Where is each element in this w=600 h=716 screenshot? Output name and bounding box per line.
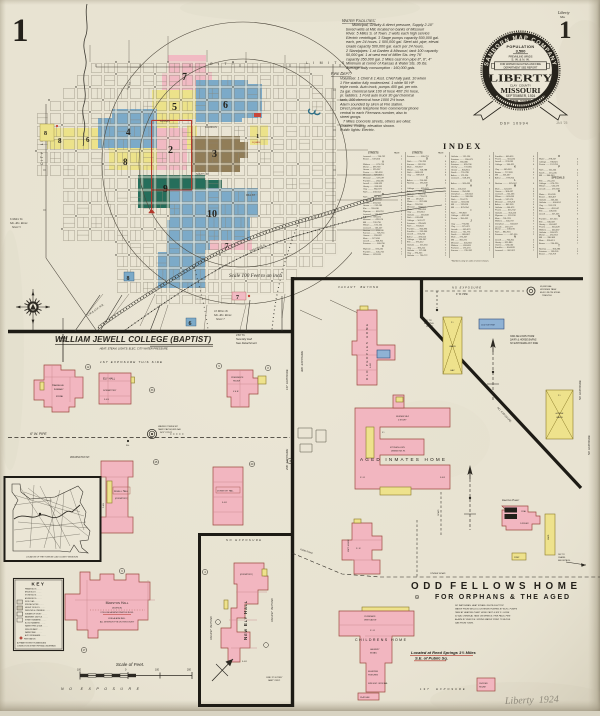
svg-text:ROAD: ROAD — [437, 509, 440, 516]
svg-text:Brown .... 713-759: Brown .... 713-759 — [539, 253, 557, 256]
svg-text:See Detachment: See Detachment — [236, 341, 257, 345]
svg-text:H: H — [470, 184, 472, 187]
svg-text:ALPHABET EXTENT PLUMBING AND: ALPHABET EXTENT PLUMBING AND — [17, 642, 47, 645]
svg-text:HAY: HAY — [450, 369, 455, 372]
svg-text:JEWELL HALL: JEWELL HALL — [114, 490, 129, 493]
svg-text:JA 5 ’25: JA 5 ’25 — [556, 121, 568, 125]
svg-text:STREETS: STREETS — [368, 153, 379, 155]
svg-text:Arthur ...... 596-691: Arthur ...... 596-691 — [363, 215, 382, 218]
svg-text:Jewell .......... 427-505: Jewell .......... 427-505 — [539, 213, 560, 215]
svg-text:Clay .......... 882-973: Clay .......... 882-973 — [363, 189, 383, 191]
svg-text:4: 4 — [126, 127, 131, 137]
svg-text:BARN: BARN — [556, 416, 562, 419]
svg-text:1: 1 — [256, 133, 259, 140]
svg-text:Elm .... 101-163: Elm .... 101-163 — [451, 188, 467, 190]
svg-text:Main .... 733-768: Main .... 733-768 — [407, 204, 423, 206]
svg-text:1ST EXPOSURE: 1ST EXPOSURE — [420, 687, 467, 691]
svg-text:NO EXPOSURE: NO EXPOSURE — [587, 435, 591, 455]
svg-text:CHAPEL: CHAPEL — [558, 556, 566, 559]
svg-text:STONE BLD'G . . . . . .: STONE BLD'G . . . . . . — [25, 595, 42, 597]
svg-text:Located at Reed Springs 1½ Mil: Located at Reed Springs 1½ Miles — [411, 650, 476, 655]
svg-text:Ruth .... 882-916: Ruth .... 882-916 — [495, 230, 511, 233]
svg-text:NO EXPOSURE ANY SIDE: NO EXPOSURE ANY SIDE — [510, 342, 539, 345]
svg-text:Prairie .......... 615-702: Prairie .......... 615-702 — [495, 209, 516, 212]
svg-text:NO EXPOSURE: NO EXPOSURE — [226, 538, 263, 542]
svg-text:College ...... 300-321: College ...... 300-321 — [495, 164, 515, 166]
svg-text:VENTILATOR: VENTILATOR — [364, 619, 377, 622]
svg-text:Gallatin ........ 515-554: Gallatin ........ 515-554 — [407, 244, 428, 247]
svg-text:INDEX: INDEX — [443, 141, 483, 151]
svg-text:(DORMITORY): (DORMITORY) — [115, 498, 128, 500]
svg-text:MILL ST: MILL ST — [246, 194, 255, 197]
svg-text:Sheet 7: Sheet 7 — [216, 317, 225, 321]
svg-text:NO EXPOSURE: NO EXPOSURE — [452, 286, 482, 290]
svg-text:Kansas ......... 235-332: Kansas ......... 235-332 — [451, 250, 473, 252]
svg-text:WATER FROM WELLS & CISTERNS PU: WATER FROM WELLS & CISTERNS PUMPED BY EL… — [455, 608, 518, 611]
svg-text:Liberty ....... 268-331: Liberty ....... 268-331 — [363, 185, 383, 188]
svg-text:SQUARE: SQUARE — [252, 141, 261, 144]
svg-text:Elm ......... 108-166: Elm ......... 108-166 — [539, 211, 557, 213]
svg-text:D: D — [426, 158, 428, 161]
svg-text:C: C — [382, 245, 384, 248]
svg-text:FIRE ESC. IRON BAL.: FIRE ESC. IRON BAL. — [368, 682, 389, 685]
svg-text:C I T Y: C I T Y — [210, 62, 236, 66]
svg-text:Leonard ..... 163-207: Leonard ..... 163-207 — [363, 226, 383, 229]
svg-text:Franklin ....... 265-340: Franklin ....... 265-340 — [407, 230, 428, 233]
svg-text:Gallatin ...... 446-473: Gallatin ...... 446-473 — [495, 206, 515, 209]
svg-text:HEIGHT OF BLD'G . . . . . .: HEIGHT OF BLD'G . . . . . . — [25, 607, 46, 609]
svg-text:Prairie ........ 285-318: Prairie ........ 285-318 — [363, 171, 383, 174]
svg-text:Nashua ......... 366-386: Nashua ......... 366-386 — [539, 248, 561, 250]
svg-text:100: 100 — [155, 669, 160, 672]
svg-text:Water .... 514-539: Water .... 514-539 — [539, 193, 556, 196]
svg-text:6: 6 — [223, 100, 228, 111]
svg-text:3 & B: 3 & B — [222, 502, 227, 504]
svg-text:Ruth ......... 780-808: Ruth ......... 780-808 — [363, 196, 382, 199]
svg-text:Jewell .......... 858-911: Jewell .......... 858-911 — [363, 240, 384, 242]
svg-text:Elm ...... 559-630: Elm ...... 559-630 — [363, 208, 380, 210]
svg-text:KITCHEN & DIN: KITCHEN & DIN — [390, 447, 405, 449]
svg-text:Arthur ........ 493-555: Arthur ........ 493-555 — [407, 236, 427, 239]
svg-text:KEY: KEY — [32, 582, 46, 587]
svg-text:Lincoln ........ 778-872: Lincoln ........ 778-872 — [407, 196, 428, 198]
svg-text:Grover .... 529-567: Grover .... 529-567 — [363, 168, 381, 171]
svg-text:8: 8 — [127, 276, 130, 282]
svg-text:Withers ..... 640-719: Withers ..... 640-719 — [495, 220, 515, 223]
svg-text:FIRE HYDRANT . . . . . .: FIRE HYDRANT . . . . . . — [25, 628, 44, 631]
svg-text:Mill ....... 336-368: Mill ....... 336-368 — [539, 237, 556, 239]
svg-text:Arthur .......... 254-349: Arthur .......... 254-349 — [407, 179, 428, 182]
svg-text:Clay ....... 839-909: Clay ....... 839-909 — [407, 175, 425, 177]
svg-text:Wilson ....... 672-742: Wilson ....... 672-742 — [363, 225, 383, 227]
svg-text:CONNECTIONS STREET PIPE AND UN: CONNECTIONS STREET PIPE AND UNDERPASS — [17, 644, 57, 647]
svg-text:6: 6 — [86, 136, 90, 144]
svg-text:3 & B: 3 & B — [104, 399, 110, 401]
svg-text:2 & B: 2 & B — [370, 363, 372, 369]
svg-text:F.H.: F.H. — [126, 445, 130, 447]
svg-text:R: R — [558, 190, 560, 193]
svg-text:Gallatin ......... 354-423: Gallatin ......... 354-423 — [495, 212, 517, 215]
svg-text:Franklin ........ 284-335: Franklin ........ 284-335 — [363, 179, 385, 182]
svg-text:TANK CAP 50,000 GAL: TANK CAP 50,000 GAL — [158, 428, 182, 431]
svg-text:Ruth ..... 635-688: Ruth ..... 635-688 — [407, 216, 424, 219]
svg-text:Franklin .... 517-545: Franklin .... 517-545 — [539, 218, 558, 221]
svg-text:COAL: COAL — [521, 510, 526, 513]
svg-text:WOODEN TANK: WOODEN TANK — [540, 288, 557, 291]
svg-text:Mill ...... 423-467: Mill ...... 423-467 — [495, 175, 511, 177]
svg-text:Average daily consumption : 16: Average daily consumption : 160,000 gals… — [345, 66, 415, 70]
svg-text:2 & B: 2 & B — [439, 477, 446, 479]
svg-text:Franklin .......... 186-280: Franklin .......... 186-280 — [451, 195, 474, 198]
svg-text:Ruth ...... 710-779: Ruth ...... 710-779 — [451, 198, 468, 201]
svg-text:Clay ...... 469-543: Clay ...... 469-543 — [495, 169, 512, 171]
svg-text:IN BAS.: IN BAS. — [370, 652, 378, 655]
svg-text:Gallatin ........ 736-772: Gallatin ........ 736-772 — [407, 254, 428, 257]
svg-text:Mill .......... 870-954: Mill .......... 870-954 — [451, 207, 470, 209]
svg-text:Ruth ........ 458-554: Ruth ........ 458-554 — [363, 190, 382, 193]
svg-text:NO WATCHMAN. HEAT STEAM LIGHT: NO WATCHMAN. HEAT STEAM LIGHTS ELECTRIC — [455, 604, 504, 607]
svg-text:Wymore ....... 663-718: Wymore ....... 663-718 — [363, 210, 384, 213]
svg-text:Owens ...... 358-422: Owens ...... 358-422 — [363, 235, 383, 237]
svg-text:2: 2 — [168, 145, 173, 156]
svg-text:SHED: SHED — [548, 534, 550, 540]
svg-text:50 GAL CHEMICAL TANK ON WHEELS: 50 GAL CHEMICAL TANK ON WHEELS. FIRE PAI… — [455, 615, 511, 618]
svg-text:Mill ........ 233-321: Mill ........ 233-321 — [407, 199, 424, 201]
svg-text:N: N — [514, 236, 516, 239]
svg-text:1: 1 — [12, 13, 29, 49]
svg-text:Fairview ..... 176-270: Fairview ..... 176-270 — [451, 246, 471, 249]
svg-text:WATER TANK . . . . . .: WATER TANK . . . . . . — [25, 631, 42, 634]
svg-text:VACANT BEYOND: VACANT BEYOND — [338, 285, 379, 289]
svg-text:100: 100 — [77, 669, 82, 672]
svg-text:PORCHES: PORCHES — [368, 675, 379, 677]
svg-text:BLOCK NUMBERS . . . . . .: BLOCK NUMBERS . . . . . . — [25, 623, 46, 625]
svg-text:O D D F E L L O W S H O M E: O D D F E L L O W S H O M E — [411, 581, 577, 592]
svg-text:7: 7 — [225, 242, 229, 250]
svg-text:Sheet 5: Sheet 5 — [12, 225, 21, 229]
svg-text:CHICKEN: CHICKEN — [479, 683, 488, 685]
svg-text:DSF 10994: DSF 10994 — [500, 122, 529, 126]
svg-text:Water .......... 287-384: Water .......... 287-384 — [407, 200, 428, 203]
svg-text:Franklin ........ 645-734: Franklin ........ 645-734 — [363, 251, 385, 254]
svg-text:NEW YORK: NEW YORK — [510, 99, 530, 103]
svg-text:O: O — [558, 155, 560, 158]
svg-text:Morse ....... 292-353: Morse ....... 292-353 — [539, 234, 558, 237]
svg-text:BARN: BARN — [449, 345, 455, 348]
svg-text:8: 8 — [123, 157, 128, 167]
svg-text:MARSTON HALL: MARSTON HALL — [106, 601, 129, 605]
svg-text:Lincoln ....... 605-673: Lincoln ....... 605-673 — [451, 229, 471, 231]
svg-text:S. W. & N. W.: S. W. & N. W. — [511, 58, 529, 62]
svg-text:FRANKLIN: FRANKLIN — [205, 126, 217, 129]
svg-text:Morse ......... 138-196: Morse ......... 138-196 — [495, 228, 516, 231]
svg-text:College .... 485-562: College .... 485-562 — [451, 215, 470, 217]
svg-text:Jewell ...... 223-285: Jewell ...... 223-285 — [495, 161, 514, 163]
svg-text:Wilson ....... 609-699: Wilson ....... 609-699 — [495, 196, 515, 198]
svg-text:Ruth ...... 758-824: Ruth ...... 758-824 — [407, 225, 424, 228]
svg-text:7: 7 — [236, 295, 239, 301]
svg-text:NUMBER OF STORY . . . . . .: NUMBER OF STORY . . . . . . — [25, 613, 47, 615]
svg-text:WILLIAM JEWELL COLLEGE (BAPTIS: WILLIAM JEWELL COLLEGE (BAPTIST) — [55, 335, 211, 344]
svg-text:L I M I T S: L I M I T S — [306, 61, 347, 65]
svg-text:OLD PEOPLES HOME: OLD PEOPLES HOME — [365, 324, 369, 380]
svg-text:SUPT. HOUSE: SUPT. HOUSE — [348, 539, 350, 552]
svg-text:24: 24 — [416, 597, 418, 599]
svg-text:Fairview .... 785-843: Fairview .... 785-843 — [407, 222, 427, 225]
svg-text:Leonard ...... 302-322: Leonard ...... 302-322 — [495, 249, 516, 252]
svg-text:Leonard .......... 766-792: Leonard .......... 766-792 — [363, 155, 386, 158]
svg-text:3RD EXPOSURE: 3RD EXPOSURE — [300, 351, 304, 372]
svg-text:Prairie ....... 556-612: Prairie ....... 556-612 — [363, 199, 383, 202]
svg-text:Arthur ........ 369-435: Arthur ........ 369-435 — [451, 182, 471, 185]
svg-text:College .... 501-577: College .... 501-577 — [407, 220, 426, 222]
svg-text:HORSE: HORSE — [556, 413, 564, 415]
svg-text:TRESTLE: TRESTLE — [542, 295, 552, 297]
svg-text:HOUSE: HOUSE — [479, 687, 486, 689]
svg-text:IRON CLAD . . . . . .: IRON CLAD . . . . . . — [25, 600, 40, 603]
svg-text:3: 3 — [212, 149, 217, 160]
svg-text:Brown ........ 294-390: Brown ........ 294-390 — [539, 242, 559, 245]
svg-text:SPECIALS: SPECIALS — [552, 176, 565, 180]
svg-text:Ruth .......... 719-783: Ruth .......... 719-783 — [407, 160, 427, 163]
svg-text:Withers ........ 400-457: Withers ........ 400-457 — [539, 229, 560, 232]
svg-text:Ruth ....... 161-204: Ruth ....... 161-204 — [539, 168, 557, 171]
svg-text:PUMP: PUMP — [514, 557, 520, 559]
svg-text:BASEMENT & ATTICS . . . . . .: BASEMENT & ATTICS . . . . . . — [25, 615, 48, 618]
svg-text:Water .......... 495-547: Water .......... 495-547 — [539, 207, 560, 210]
svg-text:AGED INMATES HOME: AGED INMATES HOME — [360, 457, 445, 462]
svg-text:FIRE STATION: FIRE STATION — [24, 637, 36, 640]
svg-text:ALL INTERIOR PTS ON THIS STORY: ALL INTERIOR PTS ON THIS STORY — [99, 621, 135, 624]
svg-text:CUPBOARD: CUPBOARD — [364, 615, 376, 618]
svg-text:1 BOILER: 1 BOILER — [520, 523, 529, 525]
svg-text:Grover ....... 232-283: Grover ....... 232-283 — [363, 204, 383, 207]
svg-text:Liberty .... 821-880: Liberty .... 821-880 — [495, 241, 513, 244]
svg-text:3 & B: 3 & B — [103, 502, 105, 508]
svg-text:(DORMITORY): (DORMITORY) — [240, 574, 253, 576]
svg-text:Ruth ..... 868-913: Ruth ..... 868-913 — [407, 171, 424, 174]
svg-text:Liberty .......... 772-855: Liberty .......... 772-855 — [451, 166, 473, 169]
svg-text:AUTO FIRE ALARM . . . . . .: AUTO FIRE ALARM . . . . . . — [25, 634, 46, 637]
svg-text:200: 200 — [187, 669, 192, 672]
svg-text:DINING RM. HL: DINING RM. HL — [391, 451, 405, 453]
svg-text:6” W. PIPE: 6” W. PIPE — [456, 293, 468, 296]
svg-text:Brown .... 619-666: Brown .... 619-666 — [363, 158, 381, 161]
svg-text:SEE DETACH.: SEE DETACH. — [558, 559, 571, 562]
svg-text:Mill ......... 742-816: Mill ......... 742-816 — [451, 204, 469, 206]
svg-text:2ND EXPOSURE: 2ND EXPOSURE — [285, 449, 289, 471]
svg-text:M: M — [514, 185, 516, 188]
svg-text:K: K — [514, 166, 516, 169]
svg-text:Gallatin .......... 563-648: Gallatin .......... 563-648 — [407, 213, 429, 216]
svg-text:VACANT BEYOND: VACANT BEYOND — [270, 598, 274, 622]
svg-text:FIRE DEPT:: FIRE DEPT: — [331, 71, 351, 76]
svg-text:125’ TO: 125’ TO — [424, 320, 432, 322]
svg-text:1ST EXPOSURE: 1ST EXPOSURE — [285, 369, 289, 390]
svg-text:2 & B: 2 & B — [232, 391, 239, 393]
svg-text:South ...... 751-788: South ...... 751-788 — [451, 171, 470, 174]
svg-text:STREET NUMBERS . . . . . .: STREET NUMBERS . . . . . . — [25, 620, 47, 622]
svg-text:Gallatin ...... 151-194: Gallatin ...... 151-194 — [451, 155, 471, 158]
svg-text:Brown .... 363-407: Brown .... 363-407 — [539, 196, 557, 199]
svg-text:NEW ELY HALL: NEW ELY HALL — [243, 600, 248, 640]
svg-text:Public lights: Electric.: Public lights: Electric. — [340, 128, 375, 132]
svg-text:HEATING: HEATING — [424, 322, 434, 325]
svg-text:LOCATION OF THE TOWN IN CLAY C: LOCATION OF THE TOWN IN CLAY COUNTY MISS… — [26, 556, 79, 559]
svg-text:FRAME BLD'G . . . . . .: FRAME BLD'G . . . . . . — [25, 588, 42, 591]
svg-text:150’ TO: 150’ TO — [558, 554, 565, 556]
svg-text:PLAY HSE: PLAY HSE — [360, 696, 370, 699]
svg-text:G: G — [470, 179, 472, 182]
svg-text:Prairie .... 350-432: Prairie .... 350-432 — [451, 217, 469, 220]
svg-text:Franklin ...... 604-628: Franklin ...... 604-628 — [495, 246, 515, 249]
svg-text:B: B — [382, 193, 384, 196]
svg-text:S.E. of Public Sq.: S.E. of Public Sq. — [415, 656, 448, 661]
svg-text:CHILDRENS HOME: CHILDRENS HOME — [355, 638, 407, 642]
svg-text:NURSES’ BLD: NURSES’ BLD — [396, 416, 410, 418]
svg-text:Arthur ....... 867-939: Arthur ....... 867-939 — [495, 203, 514, 206]
svg-text:Grover ...... 804-851: Grover ...... 804-851 — [451, 169, 470, 172]
svg-text:8: 8 — [44, 131, 47, 137]
svg-text:Doniphan ......... 634-667: Doniphan ......... 634-667 — [495, 224, 519, 226]
svg-text:Wilson ..... 876-920: Wilson ..... 876-920 — [363, 254, 382, 256]
svg-text:Clay ........ 553-614: Clay ........ 553-614 — [407, 212, 425, 214]
svg-text:(SCIENCE): (SCIENCE) — [112, 608, 122, 610]
svg-text:1: 1 — [559, 17, 572, 44]
svg-text:Missouri ...... 478-576: Missouri ...... 478-576 — [363, 218, 384, 221]
svg-text:Gallatin .......... 404-424: Gallatin .......... 404-424 — [539, 201, 561, 204]
svg-text:PRESIDENTS: PRESIDENTS — [231, 377, 244, 379]
svg-text:Wilson ......... 542-573: Wilson ......... 542-573 — [539, 186, 560, 188]
svg-text:Jewell ...... 194-260: Jewell ...... 194-260 — [407, 234, 426, 236]
svg-text:PAGE: PAGE — [394, 152, 400, 155]
svg-text:Elm ...... 536-569: Elm ...... 536-569 — [539, 221, 556, 223]
svg-text:Mill ....... 392-471: Mill ....... 392-471 — [451, 240, 468, 242]
svg-text:WATER PIPES & SIZE . . . . . .: WATER PIPES & SIZE . . . . . . — [25, 625, 48, 628]
svg-text:Arthur .... 356-380: Arthur .... 356-380 — [451, 160, 469, 163]
svg-text:Arthur ........ 879-950: Arthur ........ 879-950 — [495, 176, 515, 179]
svg-text:Nashua ........ 585-649: Nashua ........ 585-649 — [407, 183, 428, 185]
svg-text:Liberty 1924: Liberty 1924 — [504, 694, 559, 707]
svg-text:CINDER ROAD: CINDER ROAD — [430, 572, 446, 575]
svg-text:College ..... 738-821: College ..... 738-821 — [539, 161, 559, 163]
svg-text:1ST EXPOSURE THIS SIDE: 1ST EXPOSURE THIS SIDE — [100, 360, 163, 364]
svg-text:SEPTEMBER, 1924: SEPTEMBER, 1924 — [506, 94, 536, 98]
svg-text:Water ..... 298-347: Water ..... 298-347 — [539, 158, 557, 161]
svg-text:Main .... 701-783: Main .... 701-783 — [495, 218, 511, 220]
svg-text:Owens ..... 530-560: Owens ..... 530-560 — [495, 244, 514, 246]
svg-text:Scale of Feet.: Scale of Feet. — [116, 662, 144, 667]
svg-text:3,500: 3,500 — [516, 49, 526, 54]
svg-text:2 STORY: 2 STORY — [397, 420, 407, 422]
svg-text:STONE: STONE — [56, 396, 64, 398]
svg-text:ELY HALL: ELY HALL — [103, 377, 116, 381]
svg-text:PART TENT.: PART TENT. — [268, 679, 281, 682]
svg-text:HOUSE: HOUSE — [233, 381, 241, 383]
svg-text:DORMITORY HALL: DORMITORY HALL — [217, 490, 234, 493]
svg-text:Missouri ...... 193-253: Missouri ...... 193-253 — [495, 201, 516, 204]
svg-text:Lincoln .... 463-504: Lincoln .... 463-504 — [363, 202, 382, 204]
svg-text:KANSAS: KANSAS — [160, 120, 170, 123]
svg-text:NO EXPOSURE: NO EXPOSURE — [578, 380, 582, 400]
svg-text:Scale 100 Feet to an inch: Scale 100 Feet to an inch — [229, 273, 282, 279]
svg-text:Main .... 336-413: Main .... 336-413 — [539, 240, 555, 242]
svg-text:WATER TOWER 80’: WATER TOWER 80’ — [158, 425, 178, 428]
svg-text:ADOBE BLD'G . . . . . .: ADOBE BLD'G . . . . . . — [25, 597, 42, 600]
svg-text:25,000 GAL.: 25,000 GAL. — [539, 285, 553, 288]
svg-text:LAUNDRY: LAUNDRY — [370, 648, 380, 651]
svg-text:VACANT BEYOND: VACANT BEYOND — [209, 616, 213, 640]
svg-text:DEPARTMENT SEE REPORT: DEPARTMENT SEE REPORT — [504, 67, 538, 70]
svg-text:10: 10 — [207, 209, 217, 220]
svg-text:DAIRY & HORSE BARNS: DAIRY & HORSE BARNS — [510, 339, 537, 342]
svg-text:3 & B: 3 & B — [242, 661, 247, 663]
svg-text:Missouri .... 829-857: Missouri .... 829-857 — [363, 174, 383, 177]
svg-text:DORMITORY: DORMITORY — [103, 390, 117, 392]
svg-text:ELEV. 80 ON STEEL: ELEV. 80 ON STEEL — [540, 292, 561, 294]
svg-text:PAGE: PAGE — [438, 152, 444, 155]
svg-text:Jewell ........ 846-923: Jewell ........ 846-923 — [363, 183, 383, 185]
svg-text:Withers ......... 679-714: Withers ......... 679-714 — [363, 163, 385, 166]
svg-text:Elm ....... 376-412: Elm ....... 376-412 — [407, 242, 424, 244]
svg-text:Leonard ..... 618-674: Leonard ..... 618-674 — [451, 177, 471, 180]
svg-text:Withers ....... 618-695: Withers ....... 618-695 — [451, 244, 472, 247]
svg-text:ONE TO STORY: ONE TO STORY — [266, 677, 283, 679]
svg-text:FIRE ALARM BELL: FIRE ALARM BELL — [108, 617, 125, 620]
svg-text:Clay ......... 775-862: Clay ......... 775-862 — [451, 223, 470, 225]
svg-text:5: 5 — [172, 102, 177, 113]
svg-text:Wymore ...... 193-246: Wymore ...... 193-246 — [363, 248, 384, 251]
svg-text:HEAT: STEAM. LIGHTS: ELEC. C: HEAT: STEAM. LIGHTS: ELEC. CITY WATER PR… — [100, 347, 169, 351]
svg-text:OLD ICE HSE: OLD ICE HSE — [481, 325, 495, 327]
svg-text:SLEEPING: SLEEPING — [368, 671, 378, 673]
svg-text:Missouri ........ 537-597: Missouri ........ 537-597 — [363, 176, 385, 179]
svg-text:ALARM BY WHISTLE. SPRING WATER: ALARM BY WHISTLE. SPRING WATER PIPED TO … — [454, 618, 511, 621]
svg-text:Prairie .......... 340-428: Prairie .......... 340-428 — [539, 226, 560, 229]
svg-text:COLLEGE ADMINISTRATION BLDG.: COLLEGE ADMINISTRATION BLDG. — [100, 611, 134, 614]
svg-text:STREETS: STREETS — [412, 153, 423, 155]
svg-text:NOT COV’D: NOT COV’D — [160, 432, 172, 434]
svg-text:Wymore ....... 122-158: Wymore ....... 122-158 — [495, 214, 516, 217]
svg-text:WINDOWS & OPENINGS . . . . . .: WINDOWS & OPENINGS . . . . . . — [25, 610, 51, 612]
svg-text:6” W. PIPE: 6” W. PIPE — [30, 432, 47, 436]
svg-text:PLANT: PLANT — [426, 325, 434, 328]
svg-text:Clay ....... 124-173: Clay ....... 124-173 — [539, 205, 557, 207]
svg-text:6: 6 — [189, 321, 192, 327]
svg-text:SOUTH ST: SOUTH ST — [196, 173, 209, 176]
svg-text:SPECIAL NOTES . . . . . .: SPECIAL NOTES . . . . . . — [25, 603, 45, 606]
svg-text:GAS FROM TOWN.: GAS FROM TOWN. — [455, 622, 474, 625]
svg-text:College ...... 674-720: College ...... 674-720 — [539, 183, 559, 185]
svg-text:ODD FELLOWS HOME: ODD FELLOWS HOME — [510, 336, 535, 338]
svg-text:Kansas ..... 182-230: Kansas ..... 182-230 — [407, 164, 426, 166]
svg-text:*Numbers only on side of stree: *Numbers only on side of street shown. — [451, 260, 489, 263]
svg-text:8: 8 — [58, 137, 62, 145]
svg-text:Prairie ....... 157-253: Prairie ....... 157-253 — [539, 163, 559, 166]
svg-text:Main ..... 375-407: Main ..... 375-407 — [451, 237, 468, 239]
svg-text:7: 7 — [182, 72, 187, 83]
svg-text:Mill .......... 732-758: Mill .......... 732-758 — [363, 222, 382, 224]
svg-text:BRICK BLD'G . . . . . .: BRICK BLD'G . . . . . . — [25, 592, 42, 594]
svg-text:Gallatin ...... 443-541: Gallatin ...... 443-541 — [539, 198, 559, 201]
